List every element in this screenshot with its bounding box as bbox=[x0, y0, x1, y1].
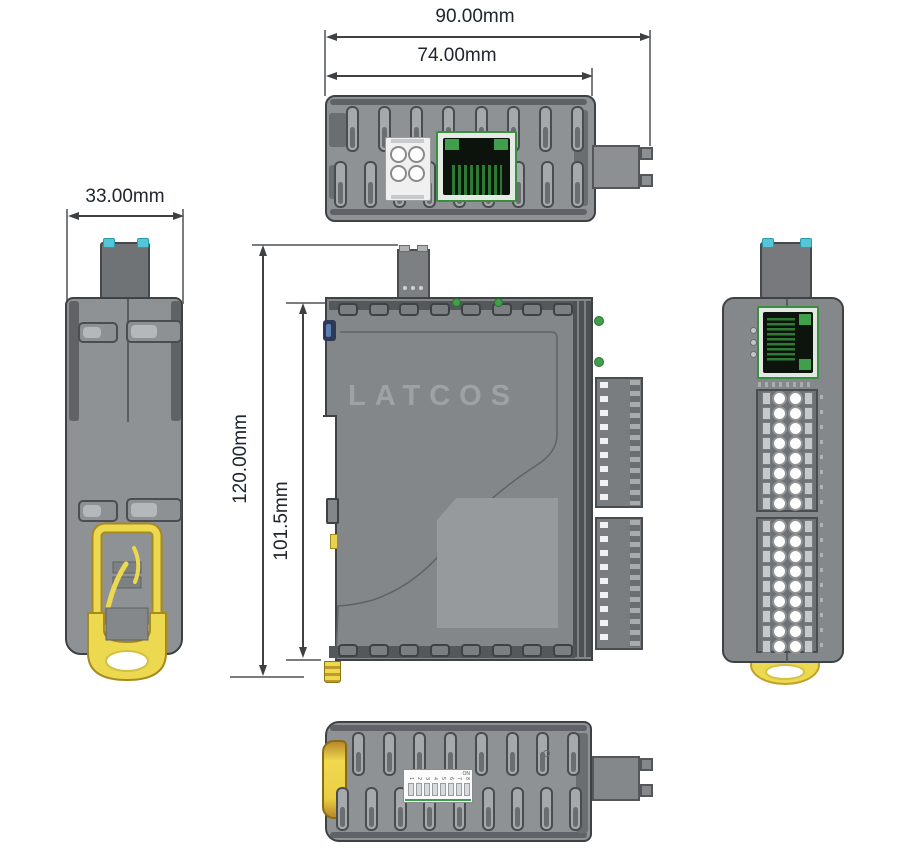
housing-recess bbox=[329, 113, 347, 147]
terminal-hole[interactable] bbox=[788, 534, 803, 549]
terminal-hole[interactable] bbox=[788, 519, 803, 534]
brand-logo: LATCOS bbox=[348, 380, 519, 413]
arrowhead-icon bbox=[299, 647, 307, 658]
terminal-clamp bbox=[762, 497, 771, 510]
terminal-row bbox=[758, 519, 816, 534]
bus-connector-tab bbox=[640, 758, 653, 771]
connector-clip bbox=[762, 238, 774, 248]
dimension-line bbox=[302, 308, 304, 650]
terminal-hole[interactable] bbox=[772, 609, 787, 624]
power-connector bbox=[385, 137, 431, 201]
arrowhead-icon bbox=[326, 72, 337, 80]
clip-release-tab[interactable] bbox=[324, 661, 341, 683]
terminal-clamp bbox=[804, 550, 813, 563]
din-bus-connector-side bbox=[100, 242, 150, 299]
terminal-clamp bbox=[804, 565, 813, 578]
terminal-clamp bbox=[762, 407, 771, 420]
connector-clip bbox=[103, 238, 115, 248]
vent-slot bbox=[365, 787, 378, 831]
rim-tab bbox=[553, 644, 573, 657]
rim-tab bbox=[492, 644, 512, 657]
housing-edge-band bbox=[330, 209, 587, 215]
dim-label-side-depth: 33.00mm bbox=[55, 186, 195, 208]
bus-connector-bottom-view bbox=[592, 756, 640, 801]
connector-clip bbox=[800, 238, 812, 248]
dip-toggle[interactable] bbox=[424, 783, 430, 796]
ethernet-led bbox=[445, 139, 459, 150]
din-rail-clip[interactable] bbox=[80, 520, 175, 690]
terminal-clamp bbox=[804, 640, 813, 653]
terminal-clamp bbox=[762, 392, 771, 405]
vent-slot bbox=[475, 732, 488, 776]
vent-slot bbox=[571, 161, 584, 208]
arrowhead-icon bbox=[259, 245, 267, 256]
terminal-block-side bbox=[595, 517, 643, 650]
terminal-row bbox=[758, 534, 816, 549]
mounting-slot bbox=[78, 322, 118, 343]
terminal-hole[interactable] bbox=[788, 466, 803, 481]
mounting-slot bbox=[126, 320, 182, 343]
terminal-teeth bbox=[630, 380, 640, 505]
terminal-clamp bbox=[804, 497, 813, 510]
terminal-clamp bbox=[762, 565, 771, 578]
arrowhead-icon bbox=[68, 212, 79, 220]
terminal-hole[interactable] bbox=[772, 534, 787, 549]
vent-slot bbox=[571, 106, 584, 152]
terminal-row bbox=[758, 406, 816, 421]
terminal-hole[interactable] bbox=[788, 436, 803, 451]
top-bus-connector bbox=[397, 249, 430, 300]
wall-highlight bbox=[577, 301, 579, 657]
dip-toggle[interactable] bbox=[440, 783, 446, 796]
rim-tab bbox=[338, 644, 358, 657]
terminal-marks bbox=[820, 523, 823, 647]
terminal-clamp bbox=[762, 437, 771, 450]
rim-tab bbox=[522, 644, 542, 657]
terminal-row bbox=[758, 481, 816, 496]
terminal-row bbox=[758, 549, 816, 564]
terminal-hole[interactable] bbox=[772, 519, 787, 534]
connector-latch bbox=[399, 245, 410, 252]
terminal-hole[interactable] bbox=[788, 564, 803, 579]
connector-pin bbox=[411, 286, 415, 290]
face-panel bbox=[437, 498, 558, 628]
extension-line bbox=[66, 209, 68, 304]
terminal-clamp bbox=[762, 595, 771, 608]
terminal-hole[interactable] bbox=[788, 609, 803, 624]
terminal-hole[interactable] bbox=[772, 549, 787, 564]
terminal-hole[interactable] bbox=[788, 549, 803, 564]
dim-label-module-height: 101.5mm bbox=[271, 471, 293, 571]
vent-slot bbox=[482, 787, 495, 831]
power-pin-hole bbox=[408, 165, 425, 182]
terminal-clamp bbox=[762, 550, 771, 563]
connector-notch bbox=[391, 195, 424, 199]
bus-contact bbox=[594, 316, 604, 326]
terminal-clamp bbox=[804, 467, 813, 480]
terminal-hole[interactable] bbox=[772, 421, 787, 436]
wall-highlight bbox=[584, 301, 586, 657]
ethernet-port-front[interactable] bbox=[757, 306, 819, 379]
rim-tab bbox=[461, 644, 481, 657]
terminal-row bbox=[758, 391, 816, 406]
dip-toggle[interactable] bbox=[456, 783, 462, 796]
terminal-teeth bbox=[630, 520, 640, 647]
terminal-hole[interactable] bbox=[788, 579, 803, 594]
terminal-hole[interactable] bbox=[788, 624, 803, 639]
terminal-row bbox=[758, 436, 816, 451]
terminal-hole[interactable] bbox=[772, 624, 787, 639]
arrowhead-icon bbox=[259, 665, 267, 676]
connector-pin bbox=[419, 286, 423, 290]
mounting-slot bbox=[78, 500, 118, 522]
terminal-hole[interactable] bbox=[772, 496, 787, 511]
terminal-row bbox=[758, 451, 816, 466]
dimension-line bbox=[262, 250, 264, 672]
dip-toggle[interactable] bbox=[416, 783, 422, 796]
connector-clip bbox=[137, 238, 149, 248]
extension-line bbox=[252, 244, 398, 246]
terminal-hole[interactable] bbox=[788, 594, 803, 609]
terminal-screws bbox=[600, 382, 608, 503]
housing-seam bbox=[127, 299, 129, 422]
ethernet-led bbox=[799, 359, 811, 370]
right-wall bbox=[573, 301, 591, 657]
dip-toggle[interactable] bbox=[432, 783, 438, 796]
terminal-hole[interactable] bbox=[772, 466, 787, 481]
status-led bbox=[750, 339, 757, 346]
terminal-hole[interactable] bbox=[772, 639, 787, 654]
bus-connector-tab bbox=[640, 147, 653, 160]
terminal-clamp bbox=[762, 452, 771, 465]
terminal-clamp bbox=[762, 422, 771, 435]
terminal-row bbox=[758, 579, 816, 594]
power-pin-hole bbox=[390, 165, 407, 182]
vent-slot bbox=[383, 732, 396, 776]
terminal-row bbox=[758, 421, 816, 436]
dip-toggle[interactable] bbox=[408, 783, 414, 796]
ethernet-port-top bbox=[436, 131, 517, 202]
extension-line bbox=[182, 209, 184, 304]
terminal-clamp bbox=[762, 535, 771, 548]
terminal-clamp bbox=[804, 392, 813, 405]
terminal-row bbox=[758, 594, 816, 609]
ethernet-led bbox=[799, 314, 811, 325]
terminal-hole[interactable] bbox=[788, 406, 803, 421]
terminal-clamp bbox=[804, 520, 813, 533]
connector-latch bbox=[417, 245, 428, 252]
dim-label-overall-width: 90.00mm bbox=[405, 6, 545, 28]
rim-tab bbox=[430, 644, 450, 657]
dip-toggle[interactable] bbox=[464, 783, 470, 796]
vent-slot bbox=[567, 732, 580, 776]
mounting-slot bbox=[126, 498, 182, 522]
terminal-row bbox=[758, 496, 816, 511]
terminal-clamp bbox=[762, 580, 771, 593]
vent-slot bbox=[336, 787, 349, 831]
terminal-clamp bbox=[762, 610, 771, 623]
terminal-marks bbox=[820, 395, 823, 507]
vent-slot bbox=[364, 161, 377, 208]
terminal-clamp bbox=[804, 535, 813, 548]
arrowhead-icon bbox=[299, 303, 307, 314]
arrowhead-icon bbox=[582, 72, 593, 80]
terminal-block-side bbox=[595, 377, 643, 508]
terminal-hole[interactable] bbox=[772, 451, 787, 466]
power-pin-hole bbox=[390, 146, 407, 163]
vent-slot bbox=[539, 106, 552, 152]
clip-hole bbox=[106, 651, 148, 671]
vent-slot bbox=[346, 106, 359, 152]
terminal-clamp bbox=[804, 407, 813, 420]
dip-number: 8 bbox=[462, 777, 471, 780]
terminal-hole[interactable] bbox=[772, 436, 787, 451]
terminal-hole[interactable] bbox=[788, 451, 803, 466]
connector-notch bbox=[391, 139, 424, 143]
terminal-hole[interactable] bbox=[788, 639, 803, 654]
drawing-canvas: 90.00mm 74.00mm bbox=[0, 0, 907, 858]
terminal-clamp bbox=[762, 640, 771, 653]
dip-positions: 12345678 bbox=[407, 774, 470, 796]
bus-connector-tab bbox=[640, 174, 653, 187]
terminal-clamp bbox=[804, 610, 813, 623]
screw-hole bbox=[543, 750, 550, 757]
bus-connector-tab bbox=[640, 784, 653, 797]
housing-edge-shade bbox=[171, 301, 181, 421]
status-led bbox=[750, 327, 757, 334]
rim-tab bbox=[399, 644, 419, 657]
dimension-line bbox=[79, 215, 174, 217]
terminal-clamp bbox=[804, 595, 813, 608]
terminal-row bbox=[758, 609, 816, 624]
terminal-clamp bbox=[804, 422, 813, 435]
dip-toggle[interactable] bbox=[448, 783, 454, 796]
arrowhead-icon bbox=[326, 33, 337, 41]
arrowhead-icon bbox=[173, 212, 184, 220]
terminal-hole[interactable] bbox=[788, 421, 803, 436]
port-markings bbox=[758, 382, 814, 387]
extension-line bbox=[230, 676, 304, 678]
ethernet-led bbox=[494, 139, 508, 150]
dim-label-overall-height: 120.00mm bbox=[230, 399, 252, 519]
din-clip-hole bbox=[765, 664, 805, 680]
bottom-rim-tabs bbox=[338, 644, 573, 658]
terminal-clamp bbox=[762, 482, 771, 495]
terminal-clamp bbox=[804, 452, 813, 465]
vent-slot bbox=[540, 787, 553, 831]
dip-switch[interactable]: ON 12345678 bbox=[403, 769, 473, 803]
ethernet-pins bbox=[452, 165, 502, 195]
housing-edge-band bbox=[330, 832, 587, 838]
arrowhead-icon bbox=[640, 33, 651, 41]
terminal-row bbox=[758, 624, 816, 639]
status-led bbox=[750, 351, 757, 358]
terminal-hole[interactable] bbox=[788, 496, 803, 511]
terminal-hole[interactable] bbox=[788, 391, 803, 406]
terminal-row bbox=[758, 639, 816, 654]
vent-slot bbox=[334, 161, 347, 208]
power-pin-hole bbox=[408, 146, 425, 163]
connector-pin bbox=[403, 286, 407, 290]
extension-line bbox=[649, 30, 651, 146]
terminal-clamp bbox=[804, 580, 813, 593]
terminal-hole[interactable] bbox=[772, 579, 787, 594]
housing-edge-band bbox=[330, 725, 587, 731]
vent-slot bbox=[541, 161, 554, 208]
bus-contact bbox=[594, 357, 604, 367]
bus-connector-top-view bbox=[592, 145, 640, 189]
dim-label-module-width: 74.00mm bbox=[387, 45, 527, 67]
terminal-block-front[interactable] bbox=[756, 389, 818, 512]
terminal-hole[interactable] bbox=[772, 406, 787, 421]
terminal-clamp bbox=[804, 625, 813, 638]
dimension-line bbox=[337, 75, 583, 77]
terminal-hole[interactable] bbox=[772, 594, 787, 609]
terminal-block-front[interactable] bbox=[756, 517, 818, 653]
dip-base-line bbox=[405, 799, 471, 801]
vent-slot bbox=[511, 787, 524, 831]
din-bus-connector-front bbox=[760, 242, 812, 299]
terminal-screws bbox=[600, 522, 608, 645]
terminal-hole[interactable] bbox=[788, 481, 803, 496]
housing-edge-shade bbox=[69, 301, 79, 421]
terminal-hole[interactable] bbox=[772, 391, 787, 406]
terminal-clamp bbox=[762, 520, 771, 533]
terminal-clamp bbox=[804, 482, 813, 495]
ethernet-pins bbox=[767, 318, 795, 362]
terminal-row bbox=[758, 564, 816, 579]
terminal-hole[interactable] bbox=[772, 481, 787, 496]
dimension-line bbox=[336, 36, 641, 38]
vent-slot bbox=[352, 732, 365, 776]
terminal-hole[interactable] bbox=[772, 564, 787, 579]
terminal-clamp bbox=[762, 467, 771, 480]
vent-slot bbox=[506, 732, 519, 776]
dip-position: 8 bbox=[463, 774, 470, 796]
terminal-clamp bbox=[762, 625, 771, 638]
vent-slot bbox=[569, 787, 582, 831]
housing-edge-band bbox=[330, 99, 587, 105]
rim-tab bbox=[369, 644, 389, 657]
terminal-clamp bbox=[804, 437, 813, 450]
terminal-row bbox=[758, 466, 816, 481]
housing-tail bbox=[106, 608, 148, 640]
